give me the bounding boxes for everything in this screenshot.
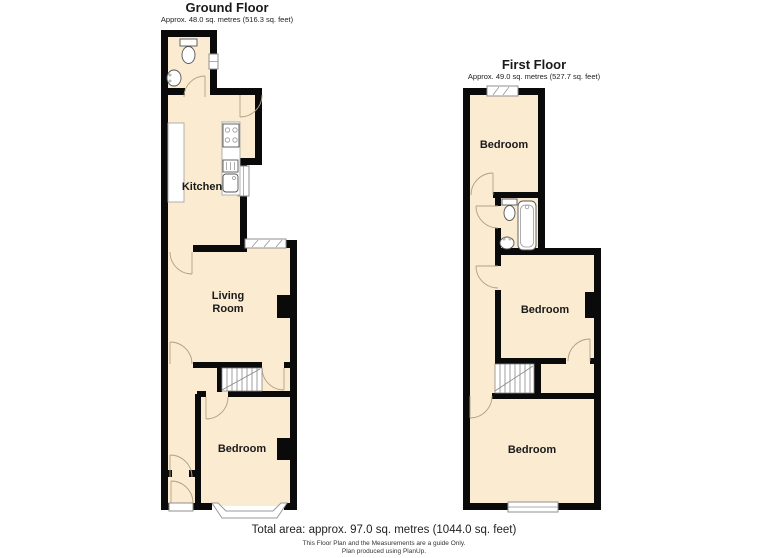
living-room-label-line1: Living [212,290,244,302]
bathroom-basin-icon [500,237,514,249]
ff-bedroom-middle-label: Bedroom [521,304,570,316]
disclaimer-text: This Floor Plan and the Measurements are… [0,540,768,547]
ff-bedroom-bottom-label: Bedroom [508,444,557,456]
wc-window [209,54,218,69]
wc-basin-icon [167,70,181,86]
drainer-icon [223,160,238,172]
credit-text: Plan produced using PlanUp. [0,548,768,555]
bath-icon [518,201,536,250]
front-door-threshold [169,503,193,511]
kitchen-label: Kitchen [182,181,223,193]
ground-floor-plan: Kitchen Living Room Bedroom [161,30,297,518]
gf-stairs-icon [222,368,262,391]
ff-bottom-window [508,502,558,512]
ground-floor-rooms [164,33,292,506]
first-floor-plan: Bedroom Bedroom Bedroom [463,86,601,512]
floorplan-page: Ground Floor Approx. 48.0 sq. metres (51… [0,0,768,558]
living-room-window [245,239,286,248]
ff-top-window [487,86,518,96]
ff-bedroom-top-label: Bedroom [480,139,529,151]
hob-icon [223,124,239,147]
living-room-label-line2: Room [212,303,243,315]
kitchen-sink-icon [223,174,238,192]
total-area-text: Total area: approx. 97.0 sq. metres (104… [0,524,768,536]
ff-stairs-icon [495,364,534,393]
floorplan-canvas: Kitchen Living Room Bedroom [0,0,768,558]
gf-bedroom-label: Bedroom [218,443,267,455]
